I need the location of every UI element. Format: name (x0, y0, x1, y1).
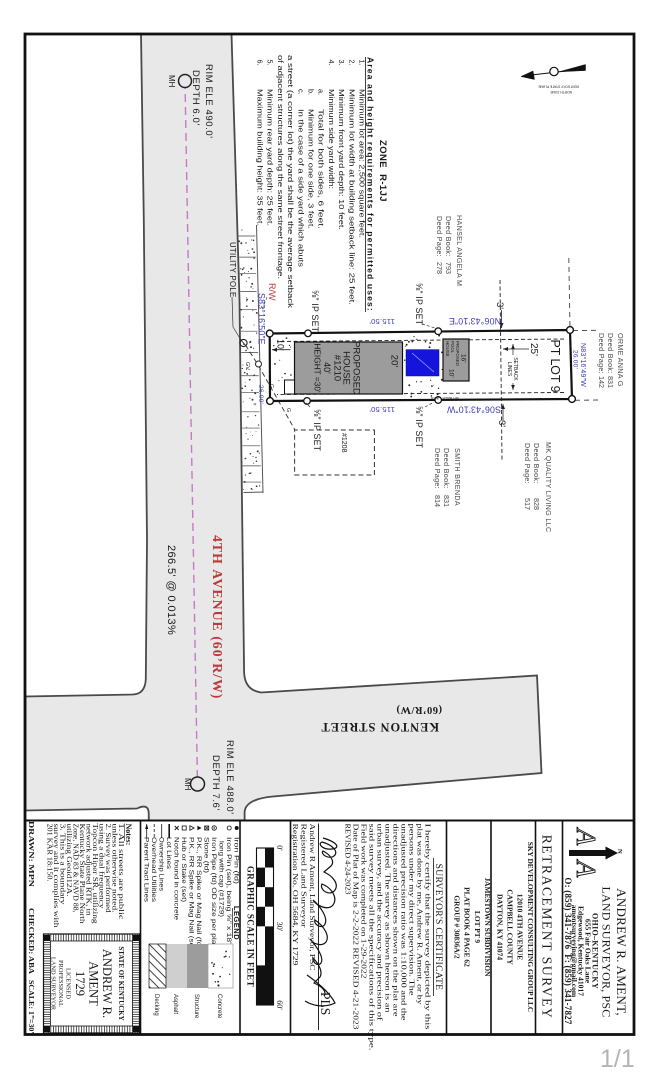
svg-text:Minimum lot width at building: Minimum lot width at building setback li… (347, 89, 356, 305)
svg-text:PLS: PLS (318, 992, 333, 1015)
svg-text:5.: 5. (266, 60, 275, 66)
svg-text:(60’R/W): (60’R/W) (396, 704, 442, 715)
svg-text:Andrew R Ament, Land Surveyor,: Andrew R Ament, Land Surveyor, PSC (308, 824, 317, 971)
svg-text:Zone, NAD 83 & NAVD 88,: Zone, NAD 83 & NAVD 88, (72, 824, 79, 913)
svg-text:DRAWN: MPN: DRAWN: MPN (27, 821, 36, 888)
svg-text:ANDREW R.: ANDREW R. (100, 949, 114, 1018)
svg-text:Iron Pipe (fd) OD size per pla: Iron Pipe (fd) OD size per plan (210, 837, 216, 949)
svg-text:Asphalt: Asphalt (172, 994, 178, 1014)
svg-text:LOT PT 9: LOT PT 9 (473, 911, 482, 943)
svg-text:S06°43’10”W: S06°43’10”W (446, 405, 501, 415)
svg-text:ORME ANNA G: ORME ANNA G (616, 333, 625, 387)
svg-text:Deed Book:: Deed Book: (606, 333, 615, 374)
svg-text:SCALE: 1”=30’: SCALE: 1”=30’ (27, 980, 36, 1034)
svg-text:REVISED 4-24-2023: REVISED 4-24-2023 (344, 824, 353, 895)
svg-text:278: 278 (435, 262, 444, 274)
svg-text:GV: GV (244, 362, 250, 370)
svg-text:Area and height requirements f: Area and height requirements for permitt… (366, 57, 376, 312)
svg-text:GROUP # 30836A/2: GROUP # 30836A/2 (453, 895, 462, 959)
svg-text:POOL: POOL (450, 341, 455, 354)
svg-text:Ownership Lines: Ownership Lines (158, 837, 164, 891)
svg-text:O: (859) 341-7876 F: (859) 34: O: (859) 341-7876 F: (859) 341-7827 (563, 877, 573, 1024)
svg-text:plat was done by me, Andrew R.: plat was done by me, Andrew R. Ament, or… (416, 824, 425, 1005)
svg-text:10': 10' (448, 369, 455, 378)
svg-text:1729: 1729 (73, 971, 87, 996)
svg-text:b.: b. (307, 89, 316, 95)
svg-text:survey and it complies with: survey and it complies with (52, 824, 59, 929)
svg-text:SURVEYOR'S CERTIFICATE: SURVEYOR'S CERTIFICATE (433, 864, 444, 991)
svg-text:3.: 3. (337, 60, 346, 66)
svg-text:SKY DEVELOPMENT CONSULTING GRO: SKY DEVELOPMENT CONSULTING GROUP LLC (526, 842, 535, 1013)
svg-text:30': 30' (275, 922, 284, 932)
svg-text:DEPTH 6.0': DEPTH 6.0' (190, 70, 201, 126)
svg-text:long with cap (#1729): long with cap (#1729) (218, 841, 224, 917)
svg-text:115.50': 115.50' (369, 317, 395, 326)
svg-text:unless otherwise noted.: unless otherwise noted. (111, 824, 118, 913)
svg-text:Maximum building height: 35 fe: Maximum building height: 35 feet. (256, 89, 265, 226)
svg-text:using a dual frequency: using a dual frequency (98, 824, 105, 910)
svg-text:Deed Book:: Deed Book: (532, 443, 541, 484)
svg-text:26.00': 26.00' (572, 350, 579, 369)
svg-text:#1208: #1208 (340, 433, 347, 453)
svg-text:JAMESTOWN SUBDIVISION: JAMESTOWN SUBDIVISION (483, 877, 492, 977)
svg-text:ZONE R-1JJ: ZONE R-1JJ (377, 140, 388, 202)
svg-text:Concrete: Concrete (216, 994, 222, 1019)
svg-text:DAYTON, KY 41074: DAYTON, KY 41074 (496, 894, 505, 960)
svg-text:Minimum lot area: 2,500 square: Minimum lot area: 2,500 square feet. (358, 89, 367, 238)
svg-text:LAND SURVEYOR, PSC: LAND SURVEYOR, PSC (600, 887, 614, 1018)
svg-text:HANSEL ANGELA M: HANSEL ANGELA M (455, 215, 464, 286)
svg-text:S83°16’50”E: S83°16’50”E (257, 293, 267, 345)
svg-text:828: 828 (532, 498, 541, 510)
svg-text:Decking: Decking (153, 994, 159, 1016)
svg-text:⅝” IP SET: ⅝” IP SET (414, 283, 424, 326)
svg-text:40': 40' (322, 362, 332, 374)
svg-text:831: 831 (442, 495, 451, 507)
svg-text:a street (a corner lot) the ya: a street (a corner lot) the yard shall b… (286, 55, 295, 309)
svg-text:PLAT BOOK 4 PAGE 62: PLAT BOOK 4 PAGE 62 (463, 887, 472, 967)
svg-text:Topcon Hiper SR, utilizing: Topcon Hiper SR, utilizing (91, 824, 98, 925)
svg-text:Stone (fd): Stone (fd) (203, 837, 209, 873)
svg-text:⅝” IP SET: ⅝” IP SET (414, 406, 424, 449)
svg-text:LAND SURVEYOR: LAND SURVEYOR (50, 957, 57, 1011)
svg-text:Total for both sides, 6 feet.: Total for both sides, 6 feet. (317, 109, 326, 229)
svg-text:GRAPHIC SCALE IN FEET: GRAPHIC SCALE IN FEET (246, 866, 256, 987)
svg-text:Minimum rear yard depth: 25 fe: Minimum rear yard depth: 25 feet. (266, 89, 275, 226)
svg-text:0': 0' (275, 845, 284, 851)
svg-text:AMENT: AMENT (87, 961, 101, 1006)
svg-text:16': 16' (460, 354, 467, 363)
svg-text:6.: 6. (256, 60, 265, 66)
svg-text:831: 831 (606, 376, 615, 388)
svg-text:MH: MH (183, 778, 192, 791)
svg-text:P.K., RR Spike or Mag Nail (fd: P.K., RR Spike or Mag Nail (fd) (195, 837, 201, 949)
svg-text:PT LOT 9: PT LOT 9 (548, 340, 563, 393)
svg-text:12010 4TH AVENUE: 12010 4TH AVENUE (516, 894, 525, 960)
svg-text:Notch found in concrete: Notch found in concrete (173, 837, 179, 921)
svg-text:793: 793 (444, 262, 453, 274)
svg-text:4.: 4. (327, 60, 336, 66)
svg-text:1.: 1. (358, 60, 367, 66)
svg-text:201 KAR 18:150.: 201 KAR 18:150. (46, 824, 53, 882)
svg-text:KENTON STREET: KENTON STREET (321, 720, 439, 734)
svg-text:STATE OF KENTUCKY: STATE OF KENTUCKY (117, 946, 124, 1020)
svg-text:SETBACK LINES: SETBACK LINES (430, 396, 459, 400)
svg-text:Notes:: Notes: (124, 824, 133, 846)
svg-text:network adjusted RTK, in: network adjusted RTK, in (85, 824, 92, 917)
svg-text:unadjusted. The survey as sho: unadjusted. The survey as shown hereon i… (384, 824, 393, 1013)
svg-text:I hereby certify that the surv: I hereby certify that the survey depicte… (424, 824, 433, 1030)
svg-text:N: N (616, 849, 623, 854)
svg-text:Deed Page:: Deed Page: (435, 216, 444, 257)
svg-text:Registered Land Surveyor: Registered Land Surveyor (300, 824, 309, 928)
svg-text:LEGEND: LEGEND (232, 906, 241, 940)
svg-text:PROFESSIONAL: PROFESSIONAL (57, 960, 64, 1007)
svg-text:Deed Book:: Deed Book: (444, 216, 453, 257)
svg-text:RETRACEMENT SURVEY: RETRACEMENT SURVEY (540, 835, 555, 1020)
svg-text:HEIGHT =30': HEIGHT =30' (313, 343, 323, 393)
svg-text:ANDREW R. AMENT,: ANDREW R. AMENT, (614, 888, 629, 1016)
svg-text:⅝” IP SET: ⅝” IP SET (310, 290, 320, 333)
svg-text:KENTUCKY STATE PLANE: KENTUCKY STATE PLANE (538, 85, 579, 89)
svg-text:Field work was completed on 1-: Field work was completed on 1-29-2022 (360, 824, 369, 979)
svg-text:1. All streets are public: 1. All streets are public (117, 824, 124, 920)
svg-text:A: A (571, 859, 601, 878)
svg-text:A: A (571, 827, 601, 846)
svg-text:2. Survey was performed: 2. Survey was performed (104, 824, 111, 914)
svg-text:3. This is a boundary: 3. This is a boundary (59, 824, 66, 906)
svg-text:Registration No. OH 5684, KY 1: Registration No. OH 5684, KY 1729 (291, 824, 300, 966)
svg-text:Date of Plat of Map is 2-2-202: Date of Plat of Map is 2-2-2022 REVISED … (352, 824, 361, 1030)
svg-text:Iron Pin (set), being ⅝” x 18”: Iron Pin (set), being ⅝” x 18” (225, 837, 231, 945)
svg-text:Kentucky State Plane North: Kentucky State Plane North (78, 824, 85, 925)
svg-text:Minimum front yard depth: 10 f: Minimum front yard depth: 10 feet. (337, 89, 346, 230)
svg-text:a.: a. (317, 89, 326, 95)
svg-text:N83°16’49”W: N83°16’49”W (579, 343, 587, 387)
svg-text:urban survey, and the accuracy: urban survey, and the accuracy and preci… (376, 824, 385, 1022)
svg-text:2.: 2. (347, 60, 356, 66)
svg-text:Structure: Structure (193, 994, 199, 1019)
svg-text:3': 3' (494, 302, 505, 309)
svg-text:directions and distances shown: directions and distances shown on the pl… (392, 824, 401, 1018)
svg-text:SMITH BRENDA: SMITH BRENDA (453, 448, 462, 506)
svg-text:60': 60' (275, 1000, 284, 1010)
svg-text:HOUSE: HOUSE (445, 341, 450, 357)
svg-text:G: G (285, 408, 291, 412)
svg-text:814: 814 (433, 495, 442, 507)
svg-text:115.50': 115.50' (369, 405, 395, 414)
svg-text:c.: c. (296, 89, 305, 95)
svg-text:4TH AVENUE (60’R/W): 4TH AVENUE (60’R/W) (209, 535, 225, 699)
svg-text:said survey meets all the spec: said survey meets all the specifications… (368, 824, 377, 1051)
svg-text:unadjusted precision ratio was: unadjusted precision ratio was 1:10,000 … (400, 824, 409, 1022)
svg-text:25': 25' (528, 343, 539, 356)
svg-text:RIM ELE 490.0': RIM ELE 490.0' (203, 64, 214, 139)
svg-text:N06°43’10”E: N06°43’10”E (449, 316, 501, 326)
svg-text:Deed Page:: Deed Page: (433, 448, 442, 489)
svg-text:MH: MH (167, 75, 176, 88)
svg-text:Hub or Stake (set): Hub or Stake (set) (180, 837, 186, 902)
svg-text:26.00': 26.00' (257, 385, 264, 404)
svg-text:20': 20' (389, 355, 400, 368)
svg-text:In the case of a side yard whi: In the case of a side yard which abuts (296, 109, 305, 268)
svg-text:142: 142 (597, 376, 606, 388)
svg-text:NORTH ZONE: NORTH ZONE (549, 90, 572, 94)
svg-text:Deed Page:: Deed Page: (597, 333, 606, 374)
svg-text:of adjacent structures along t: of adjacent structures along the same st… (276, 55, 285, 279)
svg-text:RIM ELE 488.0': RIM ELE 488.0' (224, 740, 235, 815)
svg-text:MK QUALITY LIVING LLC: MK QUALITY LIVING LLC (544, 442, 553, 532)
svg-text:LINES: LINES (506, 362, 512, 377)
svg-text:3': 3' (496, 420, 507, 427)
svg-text:Deed Book:: Deed Book: (442, 448, 451, 489)
svg-text:Deed Page:: Deed Page: (523, 443, 532, 484)
svg-text:persons under my direct superv: persons under my direct supervision. The (408, 824, 417, 997)
svg-text:P.K., RR Spike or Mag Nail (se: P.K., RR Spike or Mag Nail (set) (188, 837, 194, 952)
svg-text:Parent Tract Lines: Parent Tract Lines (143, 837, 149, 902)
svg-text:Minimum side yard width:: Minimum side yard width: (327, 89, 336, 189)
svg-text:LICENSED: LICENSED (65, 968, 72, 999)
svg-text:CAMPBELL COUNTY: CAMPBELL COUNTY (506, 889, 515, 965)
svg-text:517: 517 (523, 498, 532, 510)
svg-text:DEPTH 7.6': DEPTH 7.6' (210, 755, 221, 811)
svg-text:Minimum for one side, 3 feet.: Minimum for one side, 3 feet. (307, 109, 316, 229)
svg-text:Overhead Utilities: Overhead Utilities (150, 837, 156, 902)
svg-text:Iron Pin (fd): Iron Pin (fd) (233, 837, 239, 884)
svg-text:SETBACK: SETBACK (512, 357, 518, 381)
svg-text:utilizing Geoid12A.: utilizing Geoid12A. (65, 824, 72, 897)
svg-text:266.5' @ 0.013%: 266.5' @ 0.013% (165, 545, 177, 635)
svg-text:UTILITY POLE: UTILITY POLE (228, 242, 237, 297)
svg-text:CHECKED: ABA: CHECKED: ABA (27, 908, 36, 975)
svg-text:PROPOSED: PROPOSED (351, 341, 362, 395)
svg-text:#1210: #1210 (332, 355, 343, 381)
svg-text:Lot Lines: Lot Lines (165, 837, 171, 869)
svg-text:R/W: R/W (267, 283, 277, 301)
